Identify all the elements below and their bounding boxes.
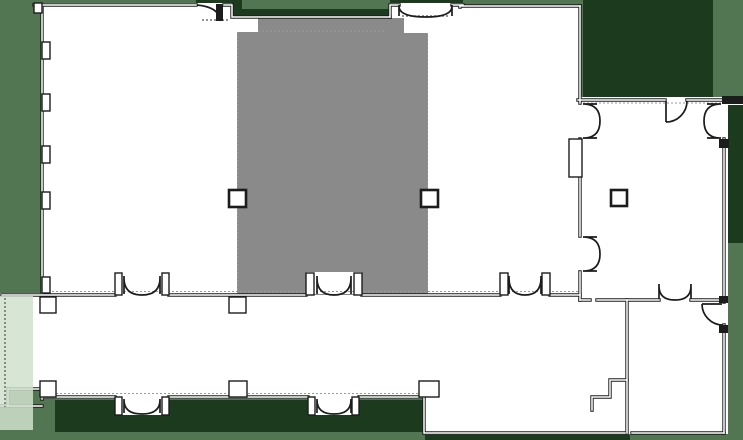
jamb-corr-bot-2a (308, 397, 315, 415)
jamb-corr-top-3a (500, 273, 508, 295)
floor-plan-svg (0, 0, 743, 440)
jamb-corr-top-1b (162, 273, 169, 295)
hall-entry-recess-n (404, 17, 450, 33)
jamb-corr-bot-2b (352, 397, 359, 415)
jamb-corr-top-2a (306, 273, 314, 295)
jamb-block-se-door-b (719, 325, 728, 333)
shadow-right-strip (728, 97, 743, 243)
pilaster-west-wall-3 (42, 146, 50, 163)
jamb-corr-top-3b (542, 273, 550, 295)
jamb-corr-bot-1a (115, 397, 122, 415)
pilaster-west-wall-4 (42, 192, 50, 209)
pilaster-west-wall-5 (42, 277, 50, 293)
pilaster-corr-top-2 (229, 297, 246, 313)
jamb-corr-bot-1b (162, 397, 169, 415)
pilaster-east-room (569, 139, 582, 177)
pilaster-corr-top-1 (40, 297, 56, 313)
hall-notch-nw (237, 18, 258, 32)
wall-block-ne-edge (722, 96, 743, 104)
exterior-door-bay-sw (115, 397, 169, 415)
jamb-corr-top-1a (115, 273, 122, 295)
pilaster-west-wall-2 (42, 94, 50, 111)
jamb-block-east-door (719, 139, 729, 148)
shadow-top-right-court (583, 0, 713, 97)
pilaster-west-wall-1 (42, 42, 50, 59)
jamb-block-se-door-a (719, 296, 728, 303)
jamb-corr-top-2b (354, 273, 362, 295)
pilaster-corr-bot-1 (40, 381, 56, 397)
central-hall-highlighted[interactable] (237, 18, 428, 295)
pilaster-corr-bot-3 (419, 381, 439, 397)
shadow-bottom-right-edge (425, 435, 630, 440)
pilaster-corr-bot-2 (229, 381, 247, 397)
floor-plan-canvas (0, 0, 743, 440)
corner-notch-nw (34, 3, 42, 13)
column-hall-west (229, 190, 246, 207)
shadow-bottom-terrace (55, 400, 423, 432)
column-hall-east (421, 190, 438, 207)
column-east-room (611, 190, 627, 206)
